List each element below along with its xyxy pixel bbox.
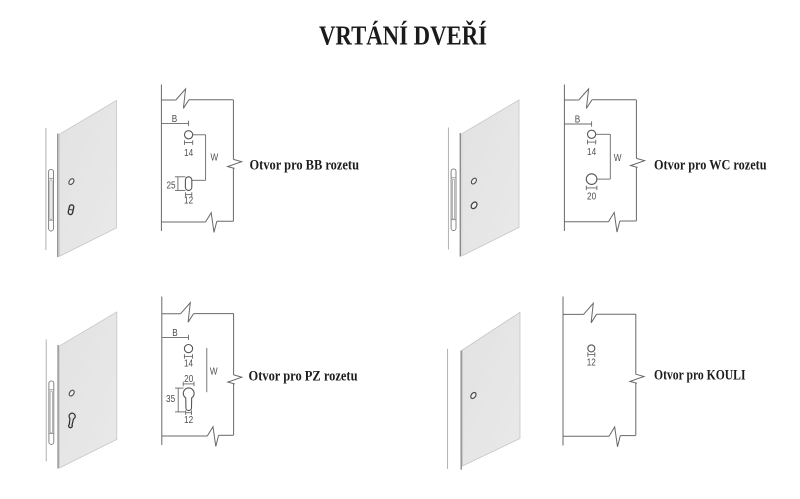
svg-text:Otvor pro KOULI: Otvor pro KOULI [654, 367, 746, 383]
svg-text:VRTÁNÍ DVEŘÍ: VRTÁNÍ DVEŘÍ [319, 20, 487, 51]
svg-text:B: B [575, 113, 580, 125]
svg-text:B: B [172, 112, 177, 124]
svg-text:W: W [210, 150, 218, 162]
svg-text:Otvor pro BB rozetu: Otvor pro BB rozetu [250, 158, 360, 174]
svg-text:W: W [210, 364, 218, 376]
svg-text:Otvor pro WC rozetu: Otvor pro WC rozetu [654, 158, 767, 174]
svg-text:14: 14 [184, 357, 193, 369]
svg-text:20: 20 [587, 189, 596, 201]
svg-text:14: 14 [587, 145, 596, 157]
svg-text:12: 12 [184, 413, 193, 425]
svg-text:35: 35 [166, 392, 175, 404]
svg-text:14: 14 [184, 146, 193, 158]
svg-text:B: B [172, 326, 177, 338]
svg-text:12: 12 [587, 355, 596, 367]
svg-text:Otvor pro PZ rozetu: Otvor pro PZ rozetu [249, 368, 358, 384]
svg-text:W: W [614, 151, 622, 163]
svg-text:20: 20 [184, 372, 193, 384]
svg-text:25: 25 [166, 178, 175, 190]
svg-text:12: 12 [184, 194, 193, 206]
